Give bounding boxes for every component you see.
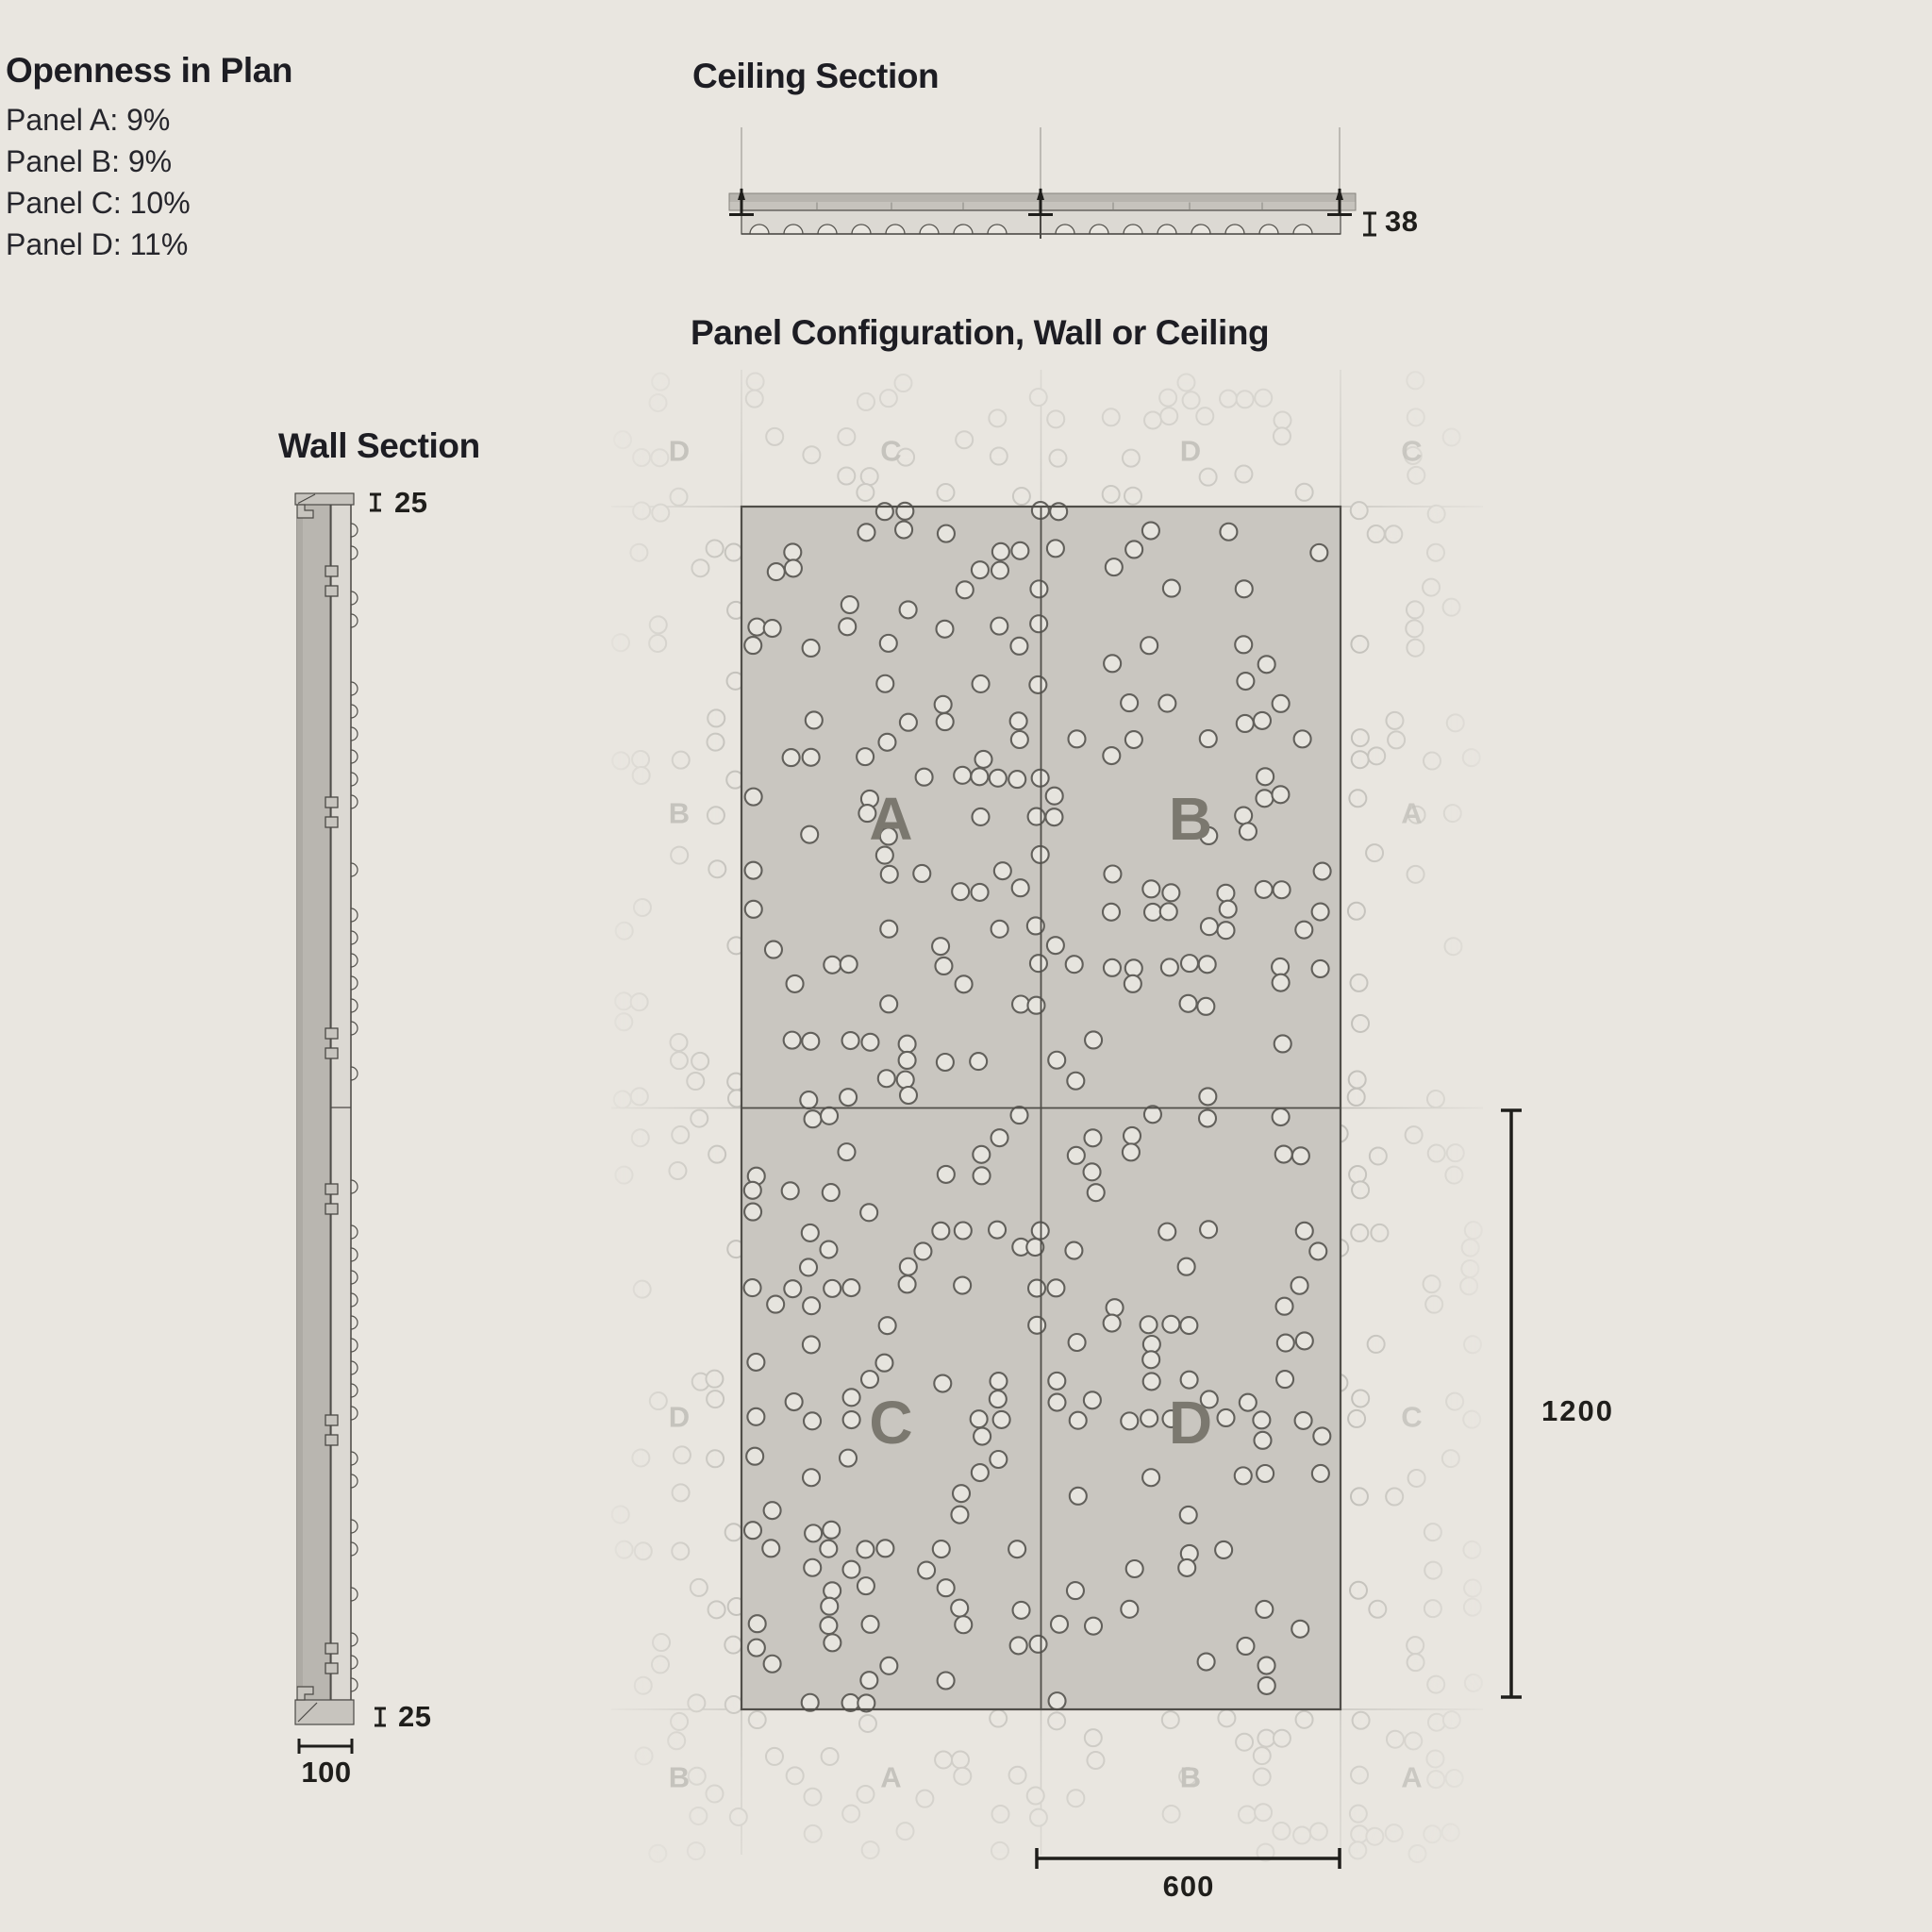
spec-sheet: Openness in Plan Panel A: 9% Panel B: 9%…: [0, 0, 1932, 1932]
panel-letters-layer: DCDCBABABDACABCD: [0, 0, 1932, 1932]
surround-label-bottom-2-B: B: [1180, 1763, 1201, 1792]
surround-label-left-1-D: D: [669, 1403, 690, 1432]
surround-label-top-1-C: C: [880, 437, 901, 466]
surround-label-top-2-D: D: [1180, 437, 1201, 466]
surround-label-bottom-1-A: A: [880, 1763, 901, 1792]
surround-label-left-0-B: B: [669, 799, 690, 828]
surround-label-right-0-A: A: [1401, 799, 1422, 828]
surround-label-right-1-C: C: [1401, 1403, 1422, 1432]
surround-label-bottom-3-A: A: [1401, 1763, 1422, 1792]
panel-label-D: D: [1169, 1392, 1212, 1453]
panel-label-A: A: [869, 789, 912, 849]
panel-label-B: B: [1169, 789, 1212, 849]
panel-label-C: C: [869, 1392, 912, 1453]
surround-label-top-3-C: C: [1401, 437, 1422, 466]
surround-label-bottom-0-B: B: [669, 1763, 690, 1792]
surround-label-top-0-D: D: [669, 437, 690, 466]
